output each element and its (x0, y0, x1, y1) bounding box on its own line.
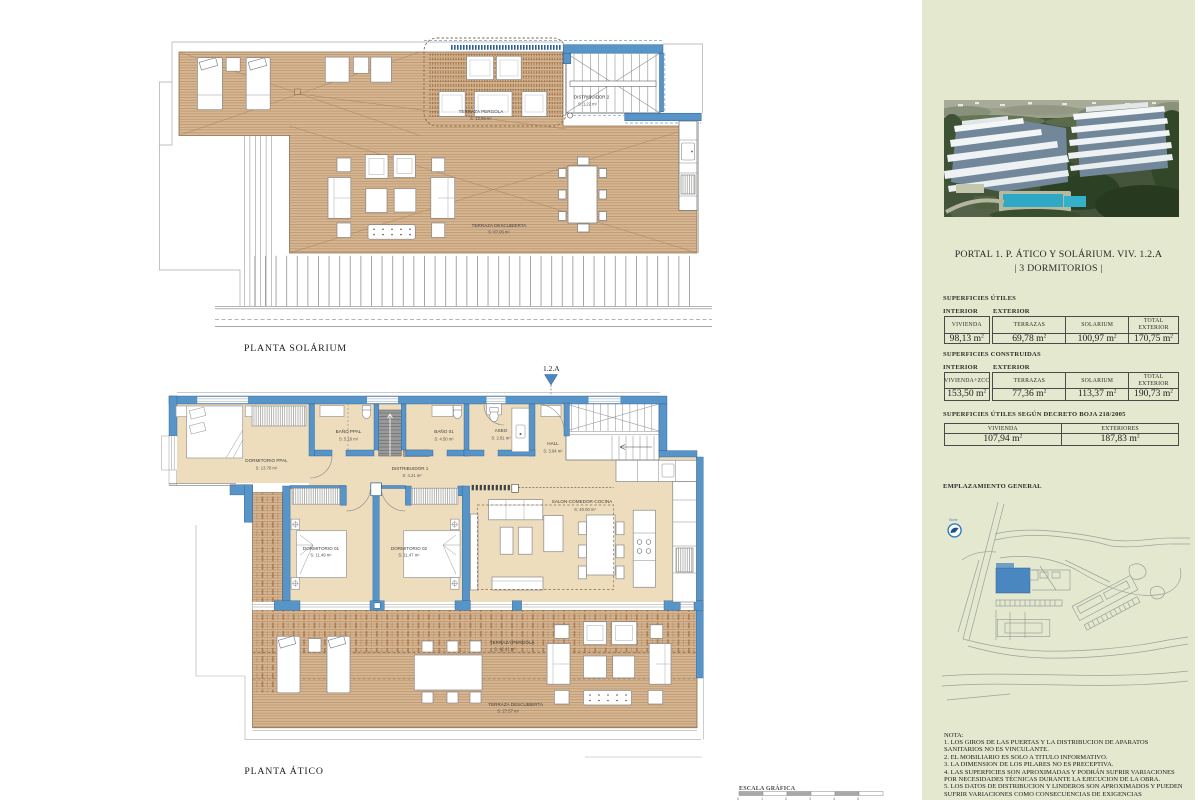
svg-text:S: 3.64 m²: S: 3.64 m² (543, 449, 563, 454)
svg-text:DISTRIBUIDOR 1: DISTRIBUIDOR 1 (392, 466, 429, 471)
svg-text:S: 1,22 m²: S: 1,22 m² (578, 102, 598, 107)
svg-text:S: 11.47 m²: S: 11.47 m² (398, 553, 420, 558)
svg-text:TERRAZA DESCUBIERTA: TERRAZA DESCUBIERTA (488, 702, 544, 707)
svg-text:HALL: HALL (547, 441, 559, 446)
svg-text:S: 12,69 m²: S: 12,69 m² (470, 116, 492, 121)
svg-text:DORMITORIO 01: DORMITORIO 01 (303, 546, 340, 551)
svg-text:S: 4.21 m²: S: 4.21 m² (402, 473, 422, 478)
svg-text:S: 42.41 m²: S: 42.41 m² (494, 647, 516, 652)
svg-text:TERRAZA DESCUBIERTA: TERRAZA DESCUBIERTA (472, 223, 528, 228)
svg-text:TERRAZA PERGOLA: TERRAZA PERGOLA (459, 109, 505, 114)
svg-text:S: 40.00 m²: S: 40.00 m² (574, 507, 596, 512)
svg-text:S: 87,06 m²: S: 87,06 m² (488, 230, 510, 235)
svg-text:PLANTA ÁTICO: PLANTA ÁTICO (244, 765, 323, 777)
svg-text:S: 4.50 m²: S: 4.50 m² (434, 437, 454, 442)
svg-text:S: 2.81 m²: S: 2.81 m² (491, 436, 511, 441)
svg-text:PLANTA SOLÁRIUM: PLANTA SOLÁRIUM (244, 342, 347, 354)
svg-text:ASEO: ASEO (495, 428, 508, 433)
svg-text:DORMITORIO PPAL: DORMITORIO PPAL (245, 458, 288, 463)
svg-text:ESCALA GRÁFICA: ESCALA GRÁFICA (739, 784, 796, 792)
svg-text:BAÑO 01: BAÑO 01 (434, 428, 454, 434)
svg-text:S: 5.16 m²: S: 5.16 m² (339, 437, 359, 442)
svg-text:SALON-COMEDOR-COCINA: SALON-COMEDOR-COCINA (552, 499, 613, 504)
svg-text:S: 13.78 m²: S: 13.78 m² (256, 466, 278, 471)
svg-text:S: 27.57 m²: S: 27.57 m² (497, 709, 519, 714)
svg-text:BAÑO PPAL: BAÑO PPAL (336, 428, 362, 434)
svg-text:Norte: Norte (949, 518, 958, 522)
svg-text:DORMITORIO 02: DORMITORIO 02 (391, 546, 428, 551)
svg-text:TERRAZA PERGÓLA: TERRAZA PERGÓLA (490, 639, 536, 645)
svg-text:S: 11.49 m²: S: 11.49 m² (310, 553, 332, 558)
svg-text:1.2.A: 1.2.A (543, 364, 560, 373)
svg-text:DISTRIBUIDOR 2: DISTRIBUIDOR 2 (574, 95, 610, 100)
